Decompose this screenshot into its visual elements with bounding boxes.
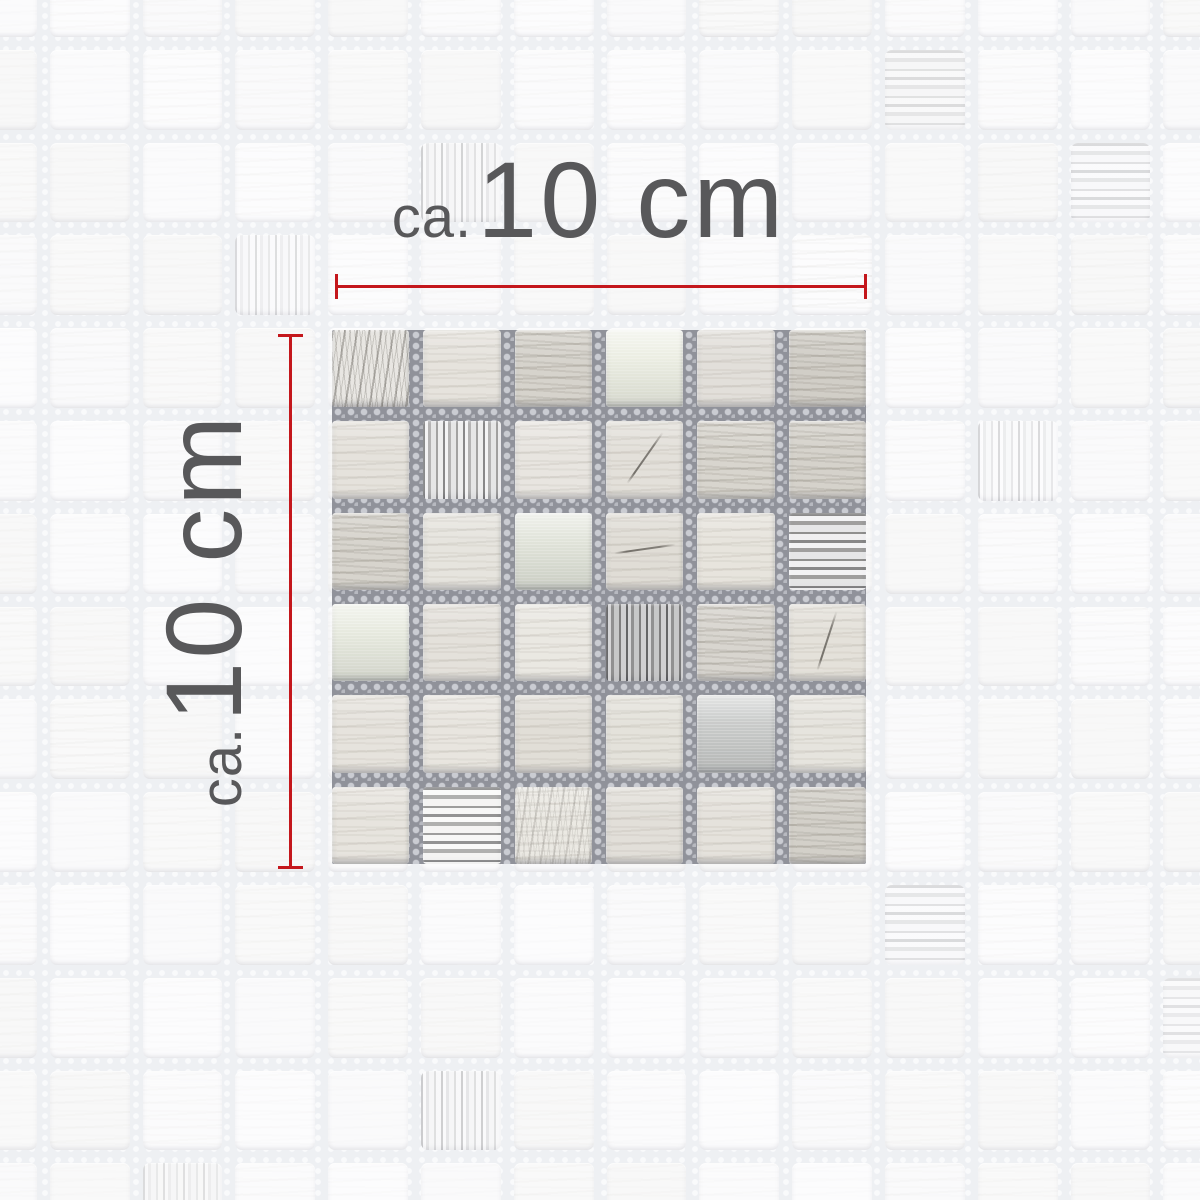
background-tile-texture bbox=[328, 50, 408, 130]
background-tile bbox=[1163, 421, 1200, 501]
background-tile bbox=[699, 1163, 779, 1200]
background-tile bbox=[1071, 699, 1151, 779]
background-tile bbox=[1071, 50, 1151, 130]
background-tile-texture bbox=[607, 978, 687, 1058]
background-tile-texture bbox=[50, 792, 130, 872]
background-tile-texture bbox=[0, 0, 37, 37]
background-tile bbox=[0, 143, 37, 223]
background-tile-texture bbox=[421, 50, 501, 130]
background-tile bbox=[50, 514, 130, 594]
background-tile bbox=[885, 143, 965, 223]
background-tile bbox=[421, 978, 501, 1058]
background-tile-texture bbox=[1071, 50, 1151, 130]
background-tile bbox=[885, 885, 965, 965]
background-tile-texture bbox=[1163, 514, 1200, 594]
sample-tile-texture bbox=[515, 695, 592, 772]
sample-tile-texture bbox=[606, 330, 683, 407]
height-measure-line bbox=[289, 335, 292, 868]
background-tile bbox=[328, 885, 408, 965]
background-tile bbox=[0, 328, 37, 408]
sample-tile-stone bbox=[423, 695, 500, 772]
background-tile bbox=[235, 1071, 315, 1151]
background-tile-texture bbox=[0, 607, 37, 687]
height-dimension-label: ca.10 cm bbox=[150, 413, 258, 807]
height-label-prefix: ca. bbox=[189, 727, 254, 807]
background-tile-texture bbox=[235, 50, 315, 130]
background-tile-texture bbox=[699, 1071, 779, 1151]
background-tile bbox=[143, 143, 223, 223]
background-tile-texture bbox=[50, 421, 130, 501]
background-tile bbox=[235, 143, 315, 223]
background-tile bbox=[607, 50, 687, 130]
background-tile bbox=[143, 1163, 223, 1200]
background-tile bbox=[1071, 1163, 1151, 1200]
background-tile bbox=[607, 1163, 687, 1200]
background-tile bbox=[1163, 514, 1200, 594]
background-tile-texture bbox=[1163, 235, 1200, 315]
background-tile-texture bbox=[607, 50, 687, 130]
background-tile-texture bbox=[1163, 50, 1200, 130]
background-tile-texture bbox=[1071, 235, 1151, 315]
measure-tick-left-icon bbox=[335, 274, 338, 299]
sample-tile-texture bbox=[515, 604, 592, 681]
sample-tile-stone bbox=[697, 330, 774, 407]
background-tile bbox=[235, 50, 315, 130]
background-tile bbox=[1163, 50, 1200, 130]
background-tile-texture bbox=[699, 978, 779, 1058]
sample-tile-texture bbox=[515, 513, 592, 590]
background-tile bbox=[978, 328, 1058, 408]
sample-tile-stoneg bbox=[515, 330, 592, 407]
background-tile bbox=[143, 328, 223, 408]
background-tile-texture bbox=[978, 421, 1058, 501]
background-tile bbox=[607, 1071, 687, 1151]
tile-product-image: ca.10 cm ca.10 cm bbox=[0, 0, 1200, 1200]
sample-tile-metal bbox=[697, 695, 774, 772]
sample-tile-fleck-texture bbox=[515, 787, 592, 864]
sample-tile-texture bbox=[423, 513, 500, 590]
background-tile bbox=[514, 1163, 594, 1200]
background-tile-texture bbox=[143, 328, 223, 408]
background-tile bbox=[0, 50, 37, 130]
background-tile bbox=[0, 1163, 37, 1200]
background-tile bbox=[885, 1071, 965, 1151]
background-tile bbox=[699, 1071, 779, 1151]
background-tile-texture bbox=[885, 421, 965, 501]
background-tile-texture bbox=[50, 235, 130, 315]
width-measure-line bbox=[336, 285, 866, 288]
background-tile-texture bbox=[143, 1071, 223, 1151]
background-tile bbox=[235, 328, 315, 408]
background-tile-texture bbox=[0, 50, 37, 130]
background-tile-texture bbox=[1071, 421, 1151, 501]
background-tile-texture bbox=[0, 978, 37, 1058]
sample-tile-stoneg bbox=[789, 330, 866, 407]
background-tile bbox=[143, 50, 223, 130]
sample-tile-texture bbox=[332, 695, 409, 772]
background-tile bbox=[50, 421, 130, 501]
background-tile bbox=[1163, 699, 1200, 779]
background-tile-texture bbox=[0, 235, 37, 315]
background-tile bbox=[792, 1163, 872, 1200]
background-tile bbox=[1071, 421, 1151, 501]
background-tile-texture bbox=[328, 0, 408, 37]
background-tile-texture bbox=[699, 885, 779, 965]
background-tile bbox=[699, 0, 779, 37]
background-tile bbox=[235, 235, 315, 315]
background-tile-texture bbox=[792, 1071, 872, 1151]
background-tile bbox=[143, 0, 223, 37]
background-tile-texture bbox=[1071, 514, 1151, 594]
sample-tile-texture bbox=[423, 330, 500, 407]
background-tile bbox=[235, 978, 315, 1058]
background-tile-texture bbox=[0, 1163, 37, 1200]
background-tile bbox=[792, 1071, 872, 1151]
width-label-prefix: ca. bbox=[392, 185, 472, 250]
background-tile bbox=[421, 885, 501, 965]
background-tile-texture bbox=[792, 50, 872, 130]
background-tile-texture bbox=[885, 0, 965, 37]
background-tile-texture bbox=[1163, 607, 1200, 687]
background-tile-texture bbox=[0, 514, 37, 594]
sample-tile-texture bbox=[332, 513, 409, 590]
background-tile bbox=[0, 235, 37, 315]
background-tile-texture bbox=[50, 50, 130, 130]
background-tile bbox=[0, 1071, 37, 1151]
background-tile bbox=[50, 235, 130, 315]
sample-tile-glassh bbox=[423, 787, 500, 864]
background-tile-texture bbox=[50, 699, 130, 779]
background-tile-texture bbox=[50, 885, 130, 965]
background-tile-texture bbox=[235, 1163, 315, 1200]
tile-crack-detail bbox=[817, 611, 838, 670]
background-tile-texture bbox=[328, 978, 408, 1058]
sample-tile-glassh bbox=[789, 513, 866, 590]
background-tile-texture bbox=[978, 235, 1058, 315]
background-tile bbox=[50, 607, 130, 687]
sample-tile-stone bbox=[515, 604, 592, 681]
background-tile bbox=[1071, 328, 1151, 408]
background-tile bbox=[885, 1163, 965, 1200]
sample-tile-texture bbox=[515, 421, 592, 498]
sample-tile-stoneg bbox=[789, 421, 866, 498]
sample-tile-texture bbox=[515, 787, 592, 864]
background-tile bbox=[978, 607, 1058, 687]
background-tile-texture bbox=[514, 978, 594, 1058]
background-tile bbox=[0, 514, 37, 594]
background-tile-texture bbox=[50, 1163, 130, 1200]
background-tile bbox=[50, 0, 130, 37]
sample-tile-texture bbox=[606, 604, 683, 681]
background-tile bbox=[978, 978, 1058, 1058]
sample-tile-texture bbox=[789, 787, 866, 864]
background-tile bbox=[1071, 792, 1151, 872]
sample-tile-stone bbox=[332, 787, 409, 864]
sample-tile-texture bbox=[332, 330, 409, 407]
background-tile bbox=[1071, 1071, 1151, 1151]
background-tile bbox=[885, 607, 965, 687]
background-tile bbox=[328, 978, 408, 1058]
background-tile bbox=[143, 978, 223, 1058]
background-tile bbox=[792, 978, 872, 1058]
background-tile-texture bbox=[978, 328, 1058, 408]
background-tile bbox=[885, 328, 965, 408]
background-tile bbox=[50, 1071, 130, 1151]
background-tile-texture bbox=[235, 235, 315, 315]
sample-tile-stone bbox=[515, 421, 592, 498]
background-tile-texture bbox=[0, 885, 37, 965]
background-tile-texture bbox=[885, 792, 965, 872]
background-tile-texture bbox=[328, 1163, 408, 1200]
background-tile-texture bbox=[1071, 1071, 1151, 1151]
background-tile bbox=[0, 607, 37, 687]
background-tile-texture bbox=[978, 607, 1058, 687]
tile-crack-detail bbox=[626, 432, 663, 484]
background-tile bbox=[50, 792, 130, 872]
background-tile bbox=[699, 978, 779, 1058]
sample-tile-stone bbox=[515, 787, 592, 864]
background-tile-texture bbox=[328, 1071, 408, 1151]
background-tile-texture bbox=[699, 1163, 779, 1200]
background-tile bbox=[1071, 235, 1151, 315]
background-tile bbox=[235, 0, 315, 37]
background-tile-texture bbox=[1071, 1163, 1151, 1200]
background-tile-texture bbox=[978, 1163, 1058, 1200]
background-tile-texture bbox=[1163, 328, 1200, 408]
background-tile-texture bbox=[978, 0, 1058, 37]
background-tile-texture bbox=[1071, 143, 1151, 223]
background-tile bbox=[235, 885, 315, 965]
background-tile-texture bbox=[978, 885, 1058, 965]
background-tile-texture bbox=[1163, 978, 1200, 1058]
background-tile-texture bbox=[885, 607, 965, 687]
background-tile bbox=[978, 514, 1058, 594]
background-tile bbox=[514, 885, 594, 965]
background-tile-texture bbox=[978, 1071, 1058, 1151]
background-tile-texture bbox=[328, 885, 408, 965]
sample-tile-stone bbox=[423, 604, 500, 681]
sample-tile-texture bbox=[515, 330, 592, 407]
background-tile-texture bbox=[235, 0, 315, 37]
background-tile bbox=[978, 50, 1058, 130]
sample-tile-texture bbox=[606, 695, 683, 772]
sample-tile-glassv bbox=[606, 604, 683, 681]
background-tile bbox=[0, 885, 37, 965]
background-tile bbox=[978, 235, 1058, 315]
background-tile-texture bbox=[978, 514, 1058, 594]
background-tile-texture bbox=[885, 1071, 965, 1151]
background-tile-texture bbox=[885, 328, 965, 408]
sample-tile-texture bbox=[332, 421, 409, 498]
background-tile bbox=[514, 0, 594, 37]
sample-tile-texture bbox=[697, 513, 774, 590]
sample-tile-metal bbox=[606, 330, 683, 407]
sample-tile-stone bbox=[789, 695, 866, 772]
sample-tile-texture bbox=[423, 421, 500, 498]
background-tile-texture bbox=[978, 50, 1058, 130]
background-tile bbox=[607, 978, 687, 1058]
background-tile-texture bbox=[978, 792, 1058, 872]
background-tile bbox=[421, 0, 501, 37]
background-tile bbox=[50, 699, 130, 779]
sample-tile-texture bbox=[423, 604, 500, 681]
background-tile-texture bbox=[514, 0, 594, 37]
background-tile-texture bbox=[0, 328, 37, 408]
sample-tile-stone bbox=[332, 421, 409, 498]
background-tile bbox=[1163, 328, 1200, 408]
background-tile-texture bbox=[421, 1071, 501, 1151]
background-tile bbox=[514, 1071, 594, 1151]
sample-tile-texture bbox=[789, 330, 866, 407]
background-tile-texture bbox=[514, 1163, 594, 1200]
background-tile bbox=[792, 50, 872, 130]
height-label-value: 10 cm bbox=[143, 413, 264, 722]
sample-tile-texture bbox=[697, 421, 774, 498]
background-tile-texture bbox=[50, 328, 130, 408]
background-tile-texture bbox=[143, 0, 223, 37]
background-tile-texture bbox=[978, 143, 1058, 223]
background-tile-texture bbox=[792, 0, 872, 37]
background-tile bbox=[1163, 607, 1200, 687]
background-tile-texture bbox=[1163, 792, 1200, 872]
background-tile bbox=[1163, 235, 1200, 315]
background-tile bbox=[978, 1163, 1058, 1200]
sample-tile-stoneg bbox=[697, 421, 774, 498]
background-tile-texture bbox=[50, 607, 130, 687]
sample-tile-texture bbox=[606, 787, 683, 864]
background-tile-texture bbox=[514, 50, 594, 130]
background-tile-texture bbox=[885, 50, 965, 130]
background-tile-texture bbox=[1071, 0, 1151, 37]
sample-tile-stone bbox=[606, 421, 683, 498]
background-tile-texture bbox=[50, 1071, 130, 1151]
background-tile bbox=[1163, 0, 1200, 37]
background-tile bbox=[1163, 978, 1200, 1058]
background-tile-texture bbox=[143, 1163, 223, 1200]
background-tile bbox=[1163, 1163, 1200, 1200]
background-tile-texture bbox=[885, 514, 965, 594]
background-tile-texture bbox=[50, 0, 130, 37]
background-tile-texture bbox=[792, 885, 872, 965]
background-tile-texture bbox=[421, 978, 501, 1058]
background-tile bbox=[607, 0, 687, 37]
sample-tile-metal bbox=[332, 604, 409, 681]
sample-tile-texture bbox=[789, 695, 866, 772]
background-tile-texture bbox=[1163, 143, 1200, 223]
measure-tick-bottom-icon bbox=[278, 866, 303, 869]
sample-tile-stone bbox=[606, 787, 683, 864]
background-tile-texture bbox=[50, 978, 130, 1058]
sample-tile-stone bbox=[332, 695, 409, 772]
background-tile-texture bbox=[143, 885, 223, 965]
background-tile bbox=[699, 885, 779, 965]
background-tile-texture bbox=[607, 1071, 687, 1151]
sample-tile-glassv bbox=[423, 421, 500, 498]
background-tile bbox=[1071, 514, 1151, 594]
background-tile-texture bbox=[607, 0, 687, 37]
background-tile-texture bbox=[143, 50, 223, 130]
background-tile bbox=[885, 50, 965, 130]
background-tile bbox=[885, 514, 965, 594]
background-tile bbox=[0, 699, 37, 779]
background-tile-texture bbox=[0, 1071, 37, 1151]
background-tile-texture bbox=[885, 235, 965, 315]
background-tile bbox=[885, 421, 965, 501]
sample-tile-stone bbox=[423, 330, 500, 407]
background-tile bbox=[1071, 607, 1151, 687]
background-tile-texture bbox=[885, 885, 965, 965]
sample-tile-stone bbox=[606, 695, 683, 772]
background-tile bbox=[328, 1163, 408, 1200]
background-tile-texture bbox=[235, 978, 315, 1058]
background-tile-texture bbox=[0, 421, 37, 501]
background-tile bbox=[143, 235, 223, 315]
background-tile bbox=[885, 235, 965, 315]
background-tile bbox=[328, 50, 408, 130]
background-tile-texture bbox=[1163, 0, 1200, 37]
background-tile bbox=[978, 1071, 1058, 1151]
sample-tile-stone bbox=[697, 787, 774, 864]
mosaic-sample-swatch bbox=[332, 330, 866, 864]
background-tile bbox=[978, 143, 1058, 223]
sample-tile-texture bbox=[697, 695, 774, 772]
background-tile-texture bbox=[978, 978, 1058, 1058]
background-tile-texture bbox=[978, 699, 1058, 779]
background-tile-texture bbox=[1071, 328, 1151, 408]
sample-tile-texture bbox=[423, 787, 500, 864]
background-tile-texture bbox=[235, 328, 315, 408]
background-tile bbox=[514, 50, 594, 130]
background-tile bbox=[421, 50, 501, 130]
background-tile bbox=[792, 885, 872, 965]
tile-crack-detail bbox=[614, 544, 676, 555]
background-tile bbox=[328, 1071, 408, 1151]
sample-tile-texture bbox=[332, 787, 409, 864]
background-tile-texture bbox=[885, 143, 965, 223]
background-tile-texture bbox=[1071, 792, 1151, 872]
background-tile-texture bbox=[0, 699, 37, 779]
background-tile bbox=[50, 143, 130, 223]
background-tile-texture bbox=[1163, 1071, 1200, 1151]
measure-tick-right-icon bbox=[864, 274, 867, 299]
background-tile-texture bbox=[1071, 699, 1151, 779]
background-tile bbox=[0, 792, 37, 872]
background-tile bbox=[50, 328, 130, 408]
background-tile bbox=[885, 978, 965, 1058]
background-tile-texture bbox=[421, 1163, 501, 1200]
background-tile bbox=[235, 1163, 315, 1200]
background-tile-texture bbox=[1163, 421, 1200, 501]
background-tile bbox=[978, 885, 1058, 965]
sample-tile-stone bbox=[789, 604, 866, 681]
background-tile-texture bbox=[143, 978, 223, 1058]
sample-tile-texture bbox=[332, 604, 409, 681]
background-tile bbox=[421, 1071, 501, 1151]
background-tile-texture bbox=[0, 143, 37, 223]
background-tile bbox=[1071, 885, 1151, 965]
background-tile-texture bbox=[885, 978, 965, 1058]
background-tile-texture bbox=[885, 699, 965, 779]
background-tile bbox=[0, 421, 37, 501]
background-tile-texture bbox=[607, 885, 687, 965]
sample-tile-texture bbox=[697, 330, 774, 407]
background-tile-texture bbox=[421, 885, 501, 965]
background-tile-texture bbox=[1163, 1163, 1200, 1200]
background-tile bbox=[1163, 143, 1200, 223]
background-tile-texture bbox=[1163, 885, 1200, 965]
background-tile-texture bbox=[607, 1163, 687, 1200]
background-tile bbox=[1163, 792, 1200, 872]
